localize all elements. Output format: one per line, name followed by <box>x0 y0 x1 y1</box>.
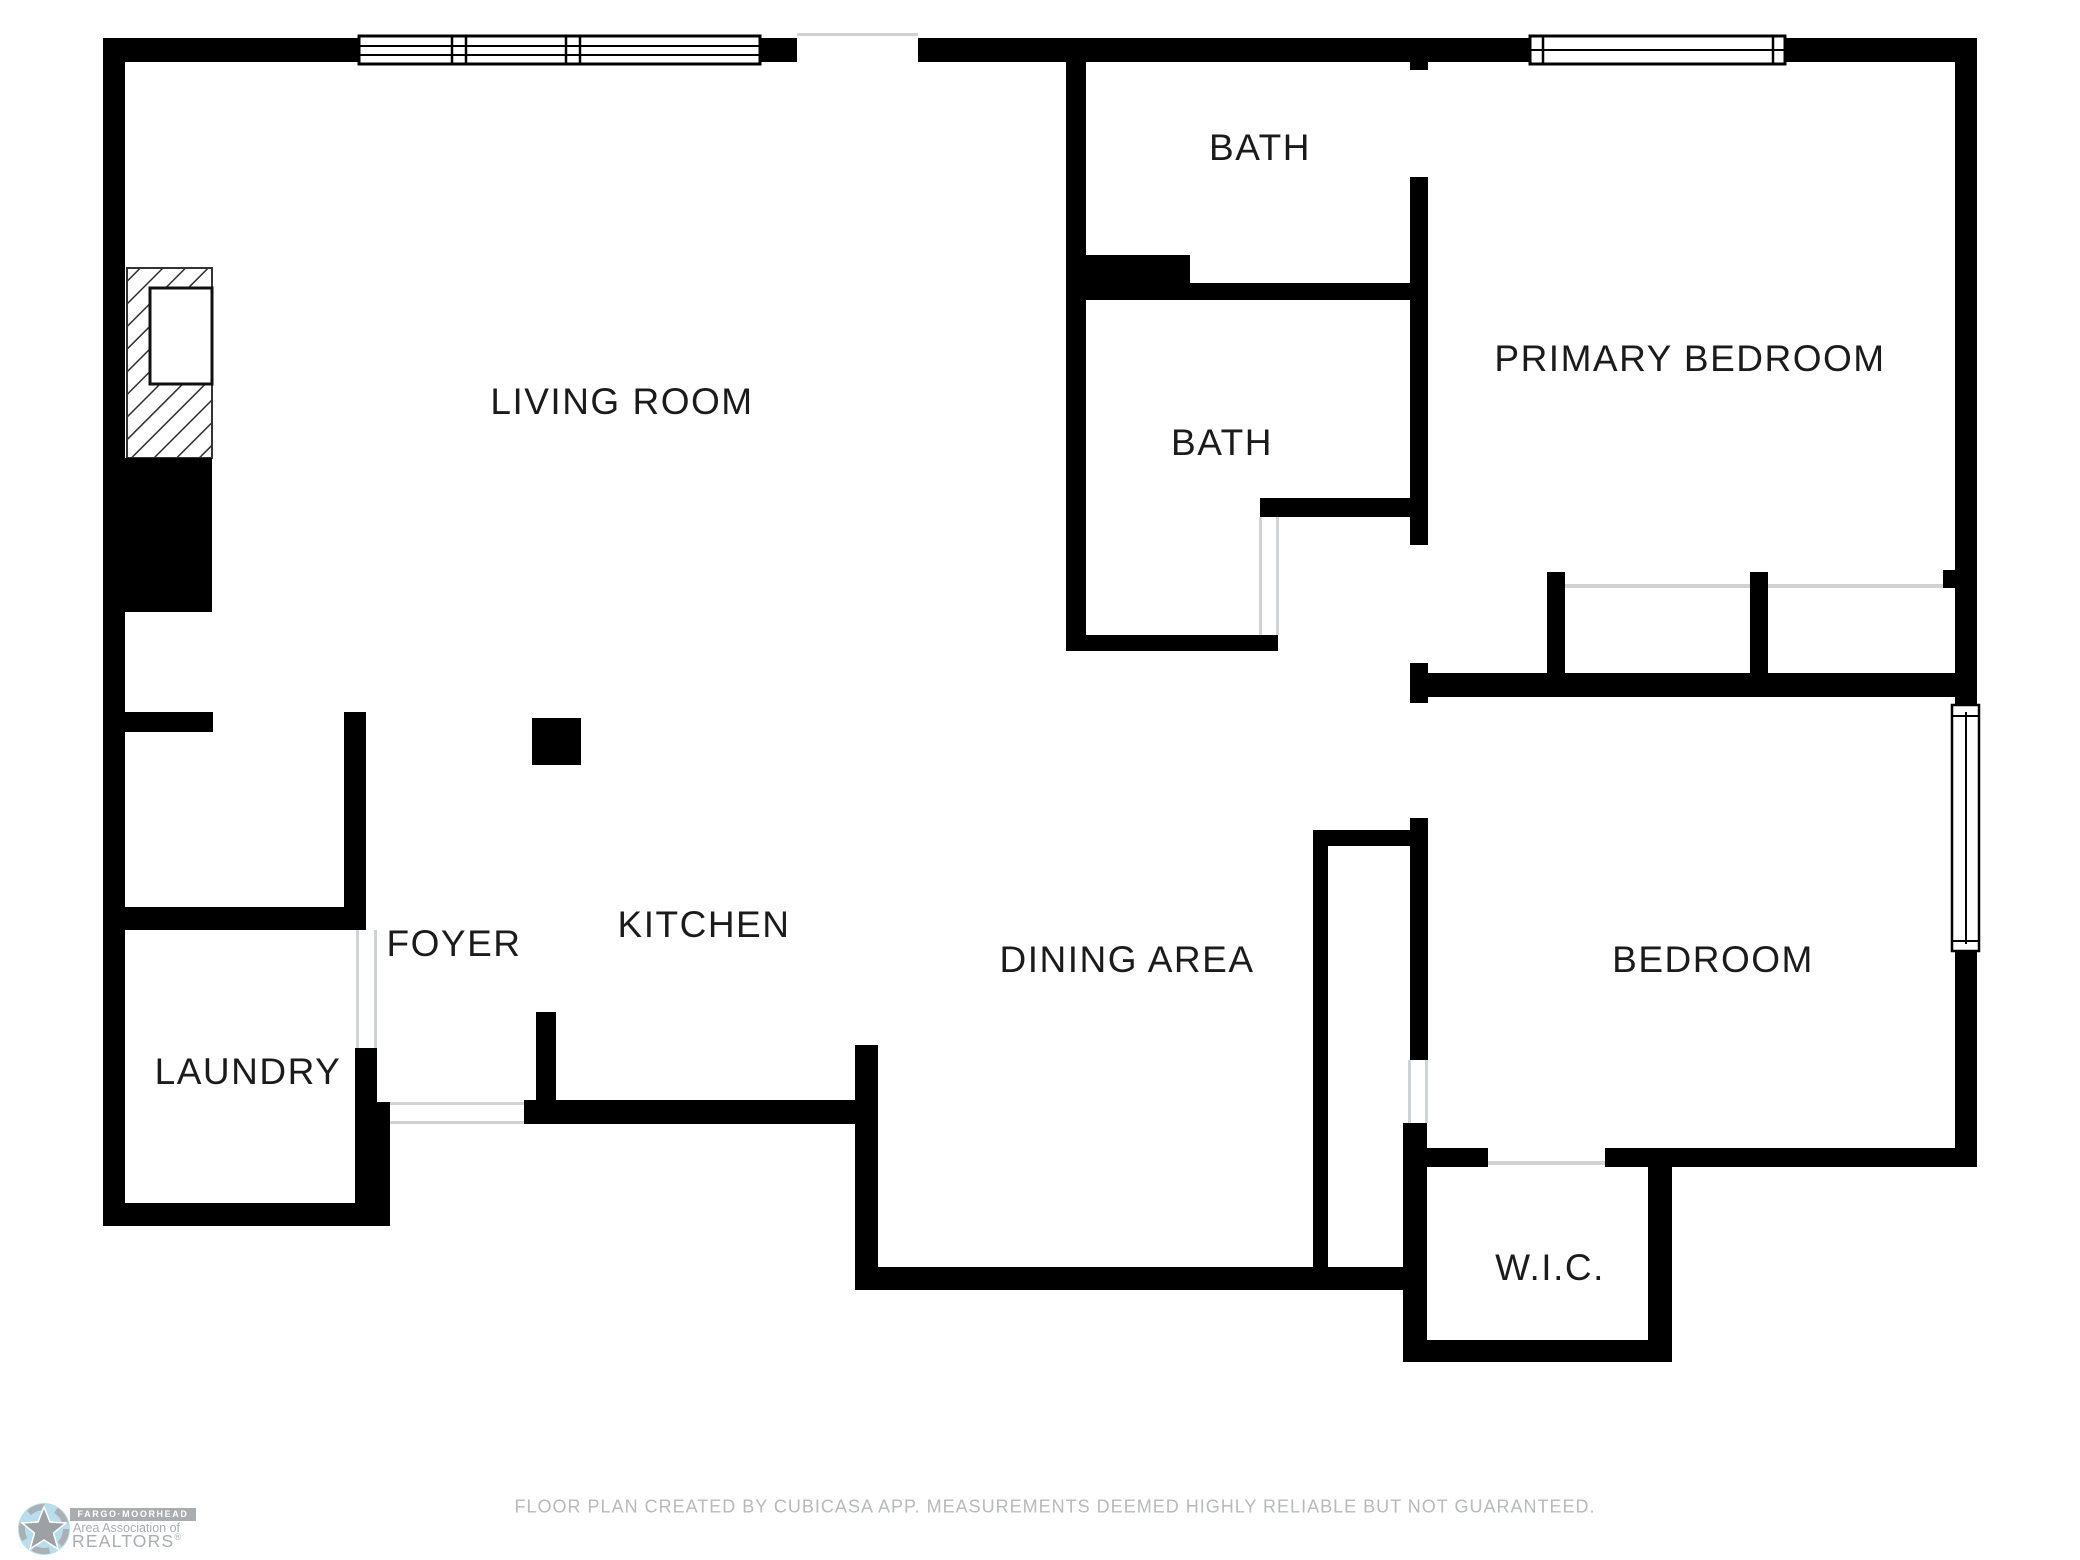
room-label-bath-top: BATH <box>1209 127 1311 169</box>
logo-realtors-word: REALTORS <box>72 1531 174 1551</box>
room-label-dining-area: DINING AREA <box>1000 939 1255 981</box>
top-wall-opening-line <box>797 33 918 36</box>
room-label-bath-lower: BATH <box>1171 422 1273 464</box>
room-label-wic: W.I.C. <box>1495 1247 1605 1289</box>
primary-closet-and-bedroom-top-wall <box>1410 570 1977 697</box>
room-label-kitchen: KITCHEN <box>618 904 791 946</box>
primary-bedroom-window <box>1530 36 1785 64</box>
living-room-window <box>359 36 760 64</box>
dining-bottom-wall <box>855 1267 1410 1290</box>
firebox <box>150 288 212 384</box>
logo-realtors-text: REALTORS® <box>72 1531 182 1552</box>
room-label-foyer: FOYER <box>387 923 522 965</box>
realtor-logo-badge <box>18 1503 70 1555</box>
bedroom-window <box>1952 705 1979 951</box>
wic-walls <box>1403 1123 1977 1362</box>
outer-left-wall <box>103 38 125 1226</box>
logo-registered-mark: ® <box>174 1532 182 1542</box>
entry-kitchen-walls <box>355 718 878 1290</box>
room-label-primary-bedroom: PRIMARY BEDROOM <box>1494 338 1885 380</box>
kitchen-column <box>532 718 581 765</box>
footer-disclaimer: FLOOR PLAN CREATED BY CUBICASA APP. MEAS… <box>515 1497 1596 1518</box>
logo-banner-text: FARGO·MOORHEAD <box>70 1508 196 1521</box>
room-label-bedroom: BEDROOM <box>1612 939 1814 981</box>
chimney-mass <box>123 458 212 612</box>
hall-nook-walls <box>1313 830 1415 1268</box>
floor-plan-drawing <box>0 0 2080 1560</box>
fireplace <box>123 268 212 612</box>
laundry-closet-walls <box>103 712 390 1226</box>
floor-plan-page: LIVING ROOM BATH BATH PRIMARY BEDROOM FO… <box>0 0 2080 1560</box>
room-label-laundry: LAUNDRY <box>155 1051 342 1093</box>
outer-right-wall <box>1955 38 1977 1167</box>
central-vertical-wall <box>1408 62 1428 1123</box>
room-label-living-room: LIVING ROOM <box>490 381 753 423</box>
